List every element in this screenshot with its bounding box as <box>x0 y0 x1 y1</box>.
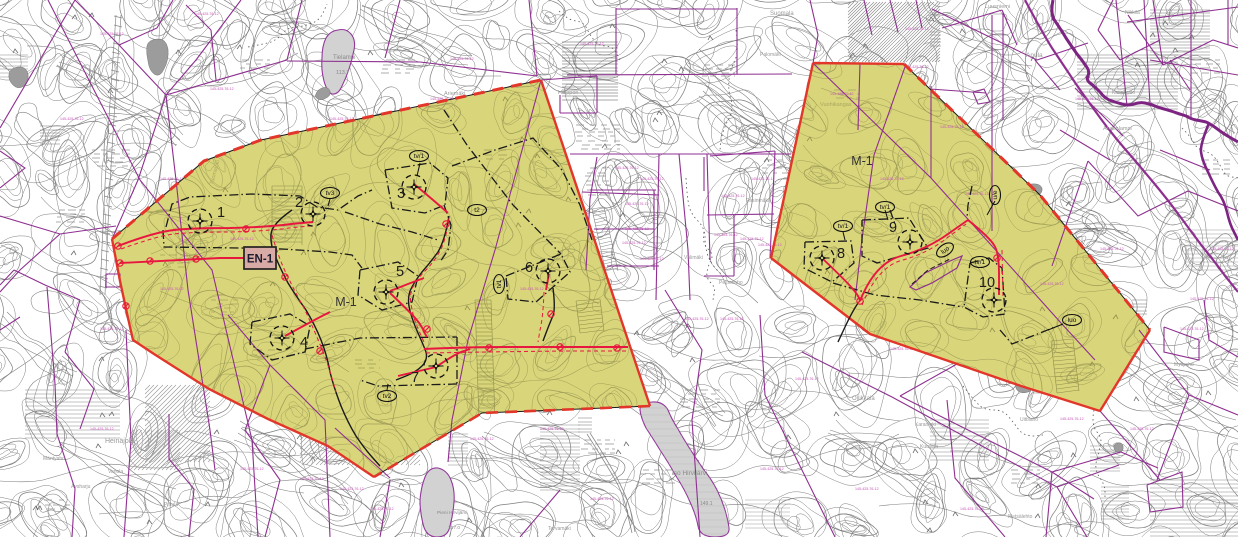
svg-text:Ahvenlampi: Ahvenlampi <box>1103 126 1132 132</box>
svg-text:145-425-76-12: 145-425-76-12 <box>1075 97 1099 101</box>
svg-text:145-425-76-12: 145-425-76-12 <box>1130 427 1154 431</box>
svg-text:145-425-76-12: 145-425-76-12 <box>714 233 738 237</box>
svg-text:Pasinmäki: Pasinmäki <box>746 198 769 204</box>
svg-text:Katinkaski: Katinkaski <box>1112 90 1135 96</box>
svg-text:145-425-76-12: 145-425-76-12 <box>240 467 264 471</box>
svg-text:EN-1: EN-1 <box>247 254 274 266</box>
svg-text:145-425-76-12: 145-425-76-12 <box>370 507 394 511</box>
svg-text:Ollikkala: Ollikkala <box>852 396 875 402</box>
svg-text:4: 4 <box>300 335 308 351</box>
svg-text:Myllyaho: Myllyaho <box>1174 362 1194 368</box>
svg-text:Vanola: Vanola <box>108 469 123 475</box>
svg-text:Pieni Hirvijärvi: Pieni Hirvijärvi <box>437 510 467 516</box>
svg-text:Heinäjoki: Heinäjoki <box>105 438 134 445</box>
svg-text:145-425-76-12: 145-425-76-12 <box>195 12 219 16</box>
svg-text:149.1: 149.1 <box>700 501 713 507</box>
svg-text:145-425-76-12: 145-425-76-12 <box>1040 282 1064 286</box>
svg-text:Apula: Apula <box>1026 52 1043 59</box>
svg-text:145-425-76-12: 145-425-76-12 <box>580 42 604 46</box>
svg-text:145-425-76-12: 145-425-76-12 <box>625 202 649 206</box>
svg-text:145-425-76-12: 145-425-76-12 <box>230 237 254 241</box>
svg-text:145-425-76-12: 145-425-76-12 <box>300 477 324 481</box>
svg-text:145-425-76-12: 145-425-76-12 <box>622 241 646 245</box>
svg-text:145-425-76-12: 145-425-76-12 <box>210 87 234 91</box>
svg-text:145-425-76-12: 145-425-76-12 <box>855 487 879 491</box>
svg-text:tv2: tv2 <box>383 393 392 400</box>
svg-text:145-425-76-12: 145-425-76-12 <box>640 177 664 181</box>
svg-text:tv3: tv3 <box>326 190 335 197</box>
svg-text:Mäntyaho: Mäntyaho <box>43 456 65 462</box>
svg-text:tv/1: tv/1 <box>414 153 425 160</box>
svg-text:Nikkilä: Nikkilä <box>1125 10 1140 16</box>
svg-text:7: 7 <box>411 370 419 386</box>
svg-text:10: 10 <box>979 275 995 291</box>
svg-text:tv1: tv1 <box>496 279 503 288</box>
svg-text:145-425-76-12: 145-425-76-12 <box>751 177 775 181</box>
svg-text:145-425-76-12: 145-425-76-12 <box>60 117 84 121</box>
svg-text:Uittilaho: Uittilaho <box>1020 417 1038 423</box>
svg-text:Iso Hirvijärvi: Iso Hirvijärvi <box>672 470 707 477</box>
svg-text:6: 6 <box>525 260 533 276</box>
svg-text:145-425-76-12: 145-425-76-12 <box>685 317 709 321</box>
svg-text:145-425-76-12: 145-425-76-12 <box>1180 327 1204 331</box>
svg-text:145-425-76-12: 145-425-76-12 <box>100 32 124 36</box>
svg-text:145-425-76-12: 145-425-76-12 <box>830 92 854 96</box>
svg-text:Kuusela: Kuusela <box>920 444 938 450</box>
svg-text:145-425-76-12: 145-425-76-12 <box>960 507 984 511</box>
svg-text:Äysharju: Äysharju <box>71 483 91 490</box>
svg-text:Pelposaho: Pelposaho <box>719 280 743 286</box>
svg-text:Vuohikangas: Vuohikangas <box>820 102 852 108</box>
svg-text:145-425-76-12: 145-425-76-12 <box>720 317 744 321</box>
svg-text:127.0: 127.0 <box>448 525 460 531</box>
svg-text:M-1: M-1 <box>851 154 873 168</box>
svg-text:145-425-76-12: 145-425-76-12 <box>90 427 114 431</box>
svg-text:145-425-76-12: 145-425-76-12 <box>160 177 184 181</box>
svg-text:u/e: u/e <box>992 190 999 199</box>
svg-text:145-425-76-12: 145-425-76-12 <box>590 497 614 501</box>
svg-text:Palomäki: Palomäki <box>760 52 781 58</box>
svg-text:145-425-76-12: 145-425-76-12 <box>470 437 494 441</box>
svg-text:tv/1: tv/1 <box>975 259 986 266</box>
svg-text:luo: luo <box>1068 317 1077 324</box>
svg-text:5: 5 <box>396 264 404 280</box>
svg-text:145-425-76-12: 145-425-76-12 <box>1100 247 1124 251</box>
svg-text:113.7: 113.7 <box>336 70 349 76</box>
svg-text:145-425-76-12: 145-425-76-12 <box>1210 247 1234 251</box>
svg-text:8: 8 <box>837 246 845 262</box>
svg-text:1: 1 <box>217 205 225 221</box>
svg-text:145-425-76-12: 145-425-76-12 <box>160 287 184 291</box>
svg-text:2: 2 <box>295 195 303 211</box>
svg-text:tv/1: tv/1 <box>838 223 849 230</box>
svg-text:145-425-76-12: 145-425-76-12 <box>625 227 649 231</box>
svg-text:Metsälehto: Metsälehto <box>1008 514 1033 520</box>
svg-text:Pirtula: Pirtula <box>164 502 178 508</box>
svg-text:145-425-76-12: 145-425-76-12 <box>795 377 819 381</box>
svg-text:145-425-76-12: 145-425-76-12 <box>880 177 904 181</box>
svg-text:145-425-76-12: 145-425-76-12 <box>740 237 764 241</box>
svg-text:145-425-76-12: 145-425-76-12 <box>1190 297 1214 301</box>
svg-text:145-425-76-12: 145-425-76-12 <box>100 327 124 331</box>
svg-text:145-425-76-12: 145-425-76-12 <box>758 243 782 247</box>
svg-text:145-425-76-12: 145-425-76-12 <box>1060 417 1084 421</box>
svg-text:145-425-76-12: 145-425-76-12 <box>940 125 964 129</box>
svg-text:145-425-76-12: 145-425-76-12 <box>965 192 989 196</box>
svg-text:Tielampi: Tielampi <box>333 55 355 61</box>
svg-text:9: 9 <box>889 220 897 236</box>
svg-text:145-425-76-12: 145-425-76-12 <box>520 287 544 291</box>
svg-text:3: 3 <box>397 186 405 202</box>
svg-text:Luusniemi: Luusniemi <box>985 4 1010 10</box>
svg-text:Suomala: Suomala <box>770 11 794 17</box>
svg-text:145-425-76-12: 145-425-76-12 <box>540 427 564 431</box>
svg-text:145-425-76-12: 145-425-76-12 <box>450 57 474 61</box>
svg-text:M-1: M-1 <box>335 295 357 309</box>
svg-text:t2: t2 <box>474 207 480 214</box>
svg-text:Heippon: Heippon <box>558 90 579 96</box>
svg-text:Välimäki: Välimäki <box>684 255 703 261</box>
svg-text:145-425-76-12: 145-425-76-12 <box>640 257 664 261</box>
svg-text:145-425-76-12: 145-425-76-12 <box>760 467 784 471</box>
svg-text:145-425-76-12: 145-425-76-12 <box>340 487 364 491</box>
svg-text:145-425-76-12: 145-425-76-12 <box>721 194 745 198</box>
svg-text:145-425-76-12: 145-425-76-12 <box>905 27 929 31</box>
svg-text:Karanlaki: Karanlaki <box>915 422 936 428</box>
svg-text:Tervamäki: Tervamäki <box>548 526 571 532</box>
svg-text:145-425-76-12: 145-425-76-12 <box>615 166 639 170</box>
